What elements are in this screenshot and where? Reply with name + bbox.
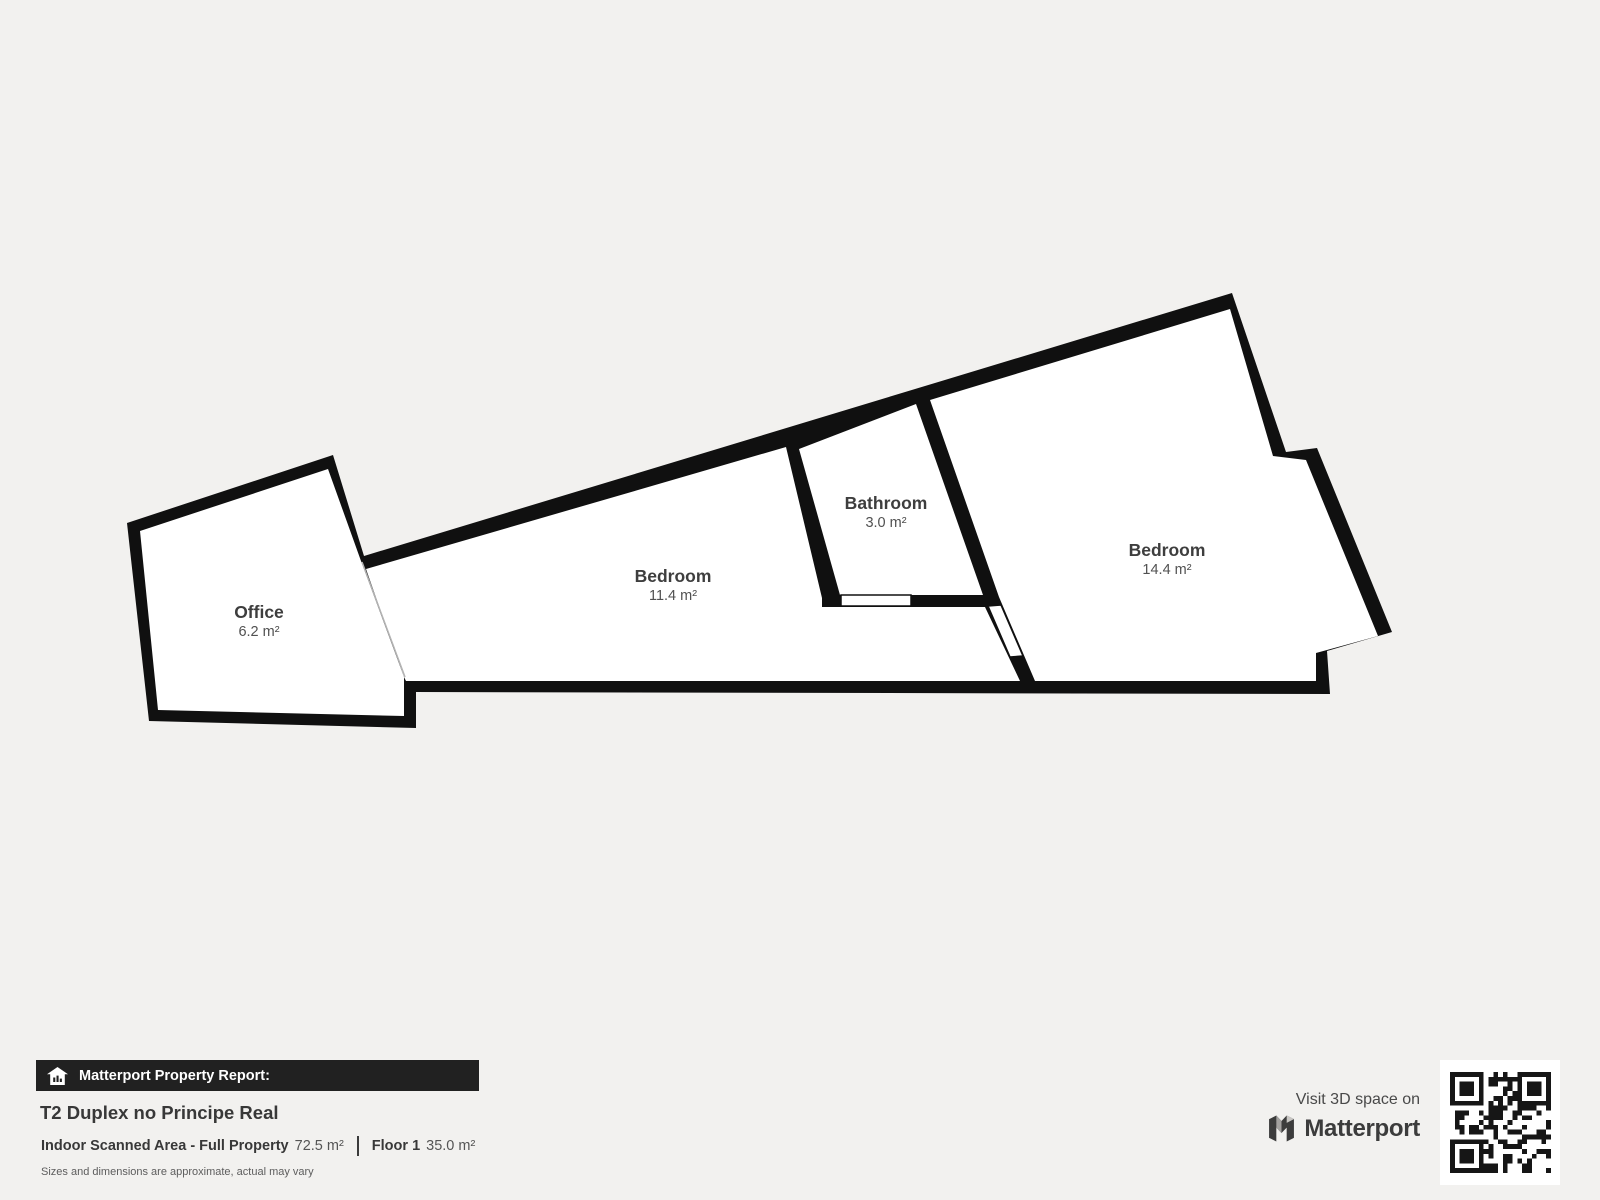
bedroom-right-label: Bedroom 14.4 m² [1129, 540, 1206, 580]
stats-divider [357, 1136, 359, 1156]
report-badge-bar: Matterport Property Report: [36, 1060, 479, 1091]
floor-label: Floor 1 [372, 1138, 420, 1154]
matterport-wordmark: Matterport [1304, 1115, 1420, 1143]
bathroom-door [841, 595, 911, 606]
report-stats-row: Indoor Scanned Area - Full Property 72.5… [41, 1136, 475, 1156]
room-name: Bedroom [1129, 540, 1206, 560]
room-area: 3.0 m² [845, 513, 928, 533]
house-icon [47, 1067, 68, 1085]
scanned-area-value: 72.5 m² [295, 1138, 344, 1154]
floor-value: 35.0 m² [426, 1138, 475, 1154]
room-name: Bedroom [635, 566, 712, 586]
matterport-logo-icon [1267, 1114, 1296, 1143]
room-area: 11.4 m² [635, 586, 712, 606]
qr-code [1450, 1072, 1551, 1173]
room-name: Office [234, 602, 284, 622]
room-area: 14.4 m² [1129, 560, 1206, 580]
property-title: T2 Duplex no Principe Real [40, 1102, 279, 1124]
floorplan-drawing [0, 0, 1600, 1200]
room-area: 6.2 m² [234, 622, 284, 642]
matterport-floorplan-report: Office 6.2 m² Bedroom 11.4 m² Bathroom 3… [0, 0, 1600, 1200]
matterport-brand: Matterport [1267, 1114, 1420, 1143]
qr-code-panel [1440, 1060, 1560, 1185]
office-label: Office 6.2 m² [234, 602, 284, 642]
report-badge-text: Matterport Property Report: [79, 1068, 270, 1084]
bathroom-label: Bathroom 3.0 m² [845, 493, 928, 533]
visit-3d-text: Visit 3D space on [1296, 1091, 1420, 1109]
room-name: Bathroom [845, 493, 928, 513]
bedroom-mid-label: Bedroom 11.4 m² [635, 566, 712, 606]
disclaimer-text: Sizes and dimensions are approximate, ac… [41, 1166, 314, 1178]
scanned-area-label: Indoor Scanned Area - Full Property [41, 1138, 289, 1154]
